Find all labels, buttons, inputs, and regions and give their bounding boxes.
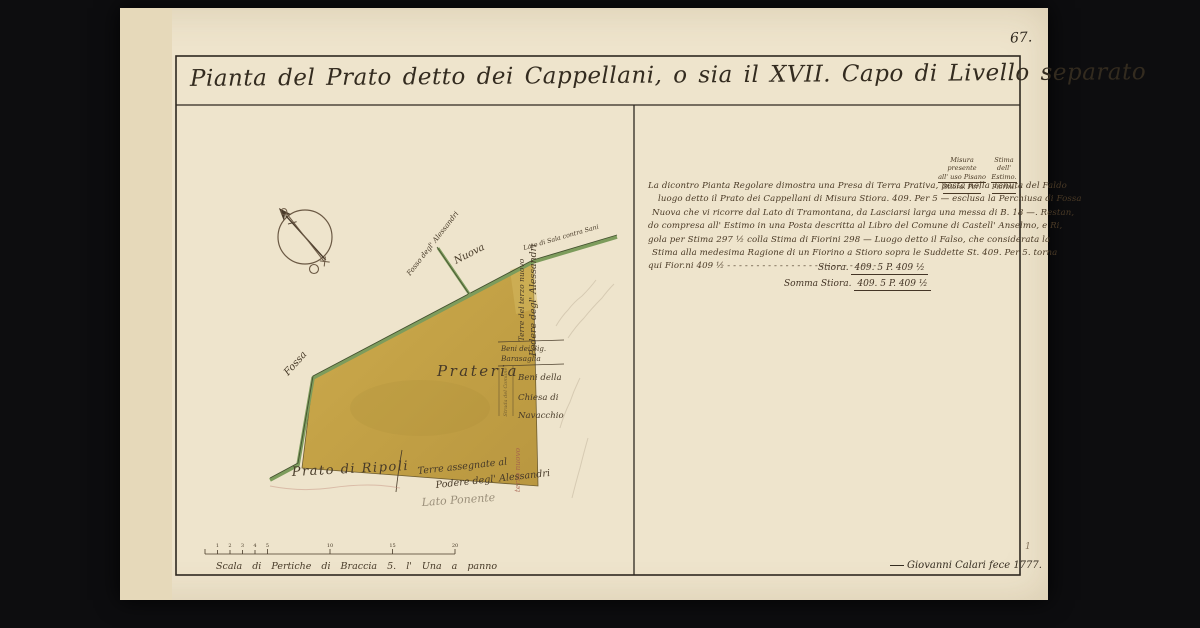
total-somma-row: Somma Stiora. 409. 5 P. 409 ½	[784, 279, 931, 289]
label-beni-line2: Barasaglia	[500, 354, 541, 363]
svg-text:2: 2	[228, 543, 231, 549]
parcel-stain	[350, 380, 490, 436]
svg-text:5: 5	[266, 543, 269, 549]
page-title: Pianta del Prato detto dei Cappellani, o…	[190, 60, 1010, 106]
label-strada-strip: Strada del Comune	[503, 368, 509, 417]
label-fossa: Fossa	[281, 349, 309, 378]
label-chiesa-line2: Chiesa di	[518, 393, 559, 403]
label-terre-terzo-nuovo: Terre del terzo nuovo	[517, 258, 526, 341]
note-line: Stima alla medesima Ragione di un Fiorin…	[648, 247, 1020, 260]
col-stima-line2: dell'	[990, 164, 1018, 172]
svg-text:15: 15	[389, 543, 395, 549]
compass-rose-icon	[274, 204, 333, 274]
label-nuova: Nuova	[451, 242, 486, 267]
svg-text:1: 1	[216, 543, 219, 549]
total-stiora-label: Stiora.	[818, 263, 849, 273]
scale-caption: Scala di Pertiche di Braccia 5. l' Una a…	[216, 561, 497, 572]
note-line: gola per Stima 297 ½ colla Stima di Fior…	[648, 234, 1020, 247]
corner-mark: 1	[1025, 542, 1031, 552]
note-line: luogo detto il Prato dei Cappellani di M…	[648, 193, 1020, 206]
label-chiesa-line1: Beni della	[517, 373, 562, 383]
label-chiesa-line3: Navacchio	[517, 411, 564, 421]
manuscript-page: Prateria Fossa Fosso degl' Alessandri Nu…	[120, 8, 1048, 600]
faint-pencil-scribbles	[556, 280, 614, 498]
note-line: do compresa all' Estimo in una Posta des…	[648, 220, 1020, 233]
col-stima-line1: Stima	[990, 156, 1018, 164]
scale-bar	[205, 549, 455, 554]
valuation-note: La dicontro Pianta Regolare dimostra una…	[648, 180, 1020, 274]
label-podere-alessandri: Podere degl' Alessandri	[528, 244, 539, 357]
outer-frame	[176, 56, 1020, 575]
scale-tick-labels: 1 2 3 4 5 10 15 20	[216, 543, 458, 549]
svg-text:3: 3	[241, 543, 244, 549]
svg-text:10: 10	[327, 543, 333, 549]
total-somma-value: 409. 5 P. 409 ½	[854, 279, 930, 291]
faint-red-scribble	[270, 485, 400, 490]
total-stiora-value: 409. 5 P. 409 ½	[851, 263, 927, 275]
col-misura-line1: Misura presente	[938, 156, 986, 173]
svg-text:4: 4	[253, 543, 256, 549]
note-line: La dicontro Pianta Regolare dimostra una…	[648, 180, 1020, 193]
label-beni-line1: Beni dei Sig.	[500, 345, 546, 353]
svg-text:20: 20	[452, 543, 458, 549]
folio-number: 67.	[1009, 29, 1032, 46]
label-terzo-nuovo: terzo nuovo	[513, 447, 522, 492]
scan-background: Prateria Fossa Fosso degl' Alessandri Nu…	[0, 0, 1200, 628]
label-lato-ponente: Lato Ponente	[420, 491, 496, 509]
total-stiora-row: Stiora. 409. 5 P. 409 ½	[818, 263, 928, 273]
total-somma-label: Somma Stiora.	[784, 279, 852, 289]
note-line: Nuova che vi ricorre dal Lato di Tramont…	[648, 207, 1020, 220]
cartographer-signature: Giovanni Calari fece 1777.	[890, 560, 1042, 571]
